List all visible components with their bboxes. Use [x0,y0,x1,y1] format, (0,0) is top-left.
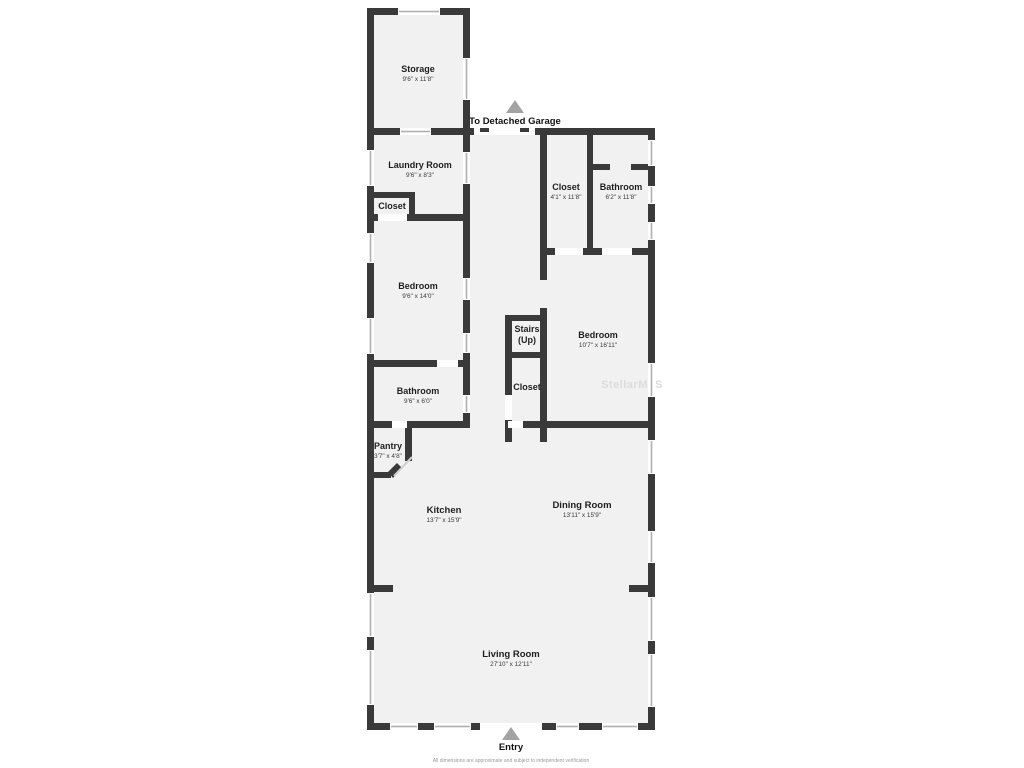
room-label-dining: Dining Room [552,500,611,511]
disclaimer-text: All dimensions are approximate and subje… [433,758,590,764]
room-label-closet-middle: Closet [513,382,541,392]
room-dims-pantry: 3'7" x 4'8" [374,453,402,460]
floor-plan-canvas: StellarMLS [0,0,1024,768]
room-dims-kitchen: 13'7" x 15'9" [426,517,461,524]
room-dims-living: 27'10" x 12'11" [490,661,532,668]
room-dims-bathroom-upper: 6'2" x 11'8" [605,194,636,201]
room-dims-bedroom-left: 9'6" x 14'0" [402,293,434,300]
room-label-stairs-up: (Up) [518,335,536,345]
room-label-closet-laundry: Closet [378,201,406,211]
room-label-kitchen: Kitchen [427,505,462,516]
floor-plan-page: StellarMLS [0,0,1024,768]
room-label-stairs: Stairs [514,324,539,334]
room-dims-closet-upper: 4'1" x 11'8" [550,194,581,201]
room-label-bedroom-left: Bedroom [398,281,438,291]
room-dims-bathroom-left: 9'6" x 6'0" [404,398,432,405]
room-label-living: Living Room [482,649,540,660]
room-dims-storage: 9'6" x 11'8" [402,76,433,83]
entry-label: Entry [499,742,524,753]
room-label-storage: Storage [401,64,435,74]
room-dims-dining: 13'11" x 15'9" [563,512,601,519]
to-detached-garage-label: To Detached Garage [469,116,561,127]
room-dims-laundry: 9'6" x 8'3" [406,172,434,179]
room-label-bathroom-left: Bathroom [397,386,440,396]
room-label-pantry: Pantry [374,441,402,451]
room-label-laundry: Laundry Room [388,160,452,170]
room-label-bedroom-right: Bedroom [578,330,618,340]
room-label-closet-upper: Closet [552,182,580,192]
room-label-bathroom-upper: Bathroom [600,182,643,192]
room-dims-bedroom-right: 10'7" x 16'11" [579,342,617,349]
